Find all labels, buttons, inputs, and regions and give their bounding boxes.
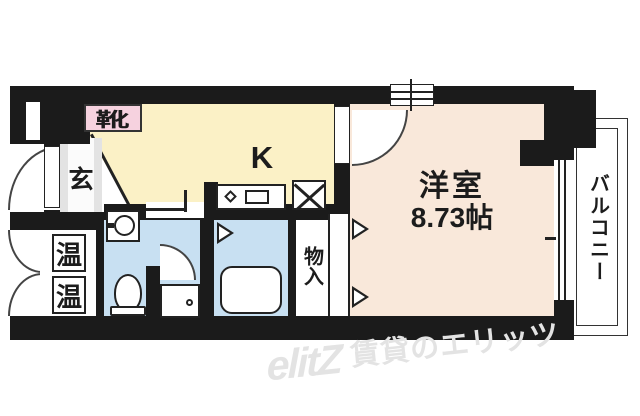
westernroom-door-leaf — [334, 106, 350, 164]
sliding-window-tick — [545, 237, 556, 240]
wall-bath-washroom — [200, 212, 214, 316]
wall-closet-right — [96, 218, 104, 318]
wall-top — [88, 86, 560, 104]
water-heater-top-label: 温 — [56, 235, 82, 272]
floorplan-canvas: 温 温 靴 玄 K 洋室 8.73帖 物入 バルコニー elitZ賃貸のエリッツ — [0, 0, 640, 416]
western-room-size: 8.73帖 — [356, 203, 548, 234]
storage-label: 物入 — [296, 224, 328, 308]
wall-notch-window — [26, 102, 40, 140]
water-heater-bottom: 温 — [52, 276, 86, 314]
wall-bath-storage — [288, 212, 296, 316]
wall-below-entrance — [10, 212, 104, 230]
western-room-name: 洋室 — [356, 170, 548, 203]
shoe-cabinet-badge: 靴 — [84, 104, 142, 132]
window-top-line2 — [390, 98, 434, 100]
washroom-sliding-door-line — [146, 208, 186, 211]
toilet-base-icon — [110, 306, 146, 316]
kitchen-sink-icon — [245, 190, 269, 204]
water-heater-bottom-label: 温 — [56, 277, 82, 314]
entrance-label: 玄 — [62, 160, 100, 196]
washer-pan-icon — [160, 284, 200, 318]
balcony-label: バルコニー — [580, 138, 616, 318]
wall-washroom-stub — [146, 266, 160, 316]
kitchen-label: K — [238, 140, 286, 176]
washbasin-icon — [106, 210, 140, 242]
wall-topright-step — [520, 140, 546, 166]
closet-door-top-arc-icon — [8, 230, 42, 273]
sliding-window-line1 — [558, 160, 560, 300]
wall-topleft-block — [10, 86, 90, 144]
window-top-icon — [390, 84, 434, 106]
window-top-line1 — [390, 91, 434, 93]
wall-topright-corner — [544, 86, 574, 166]
entrance-door-leaf — [44, 146, 60, 208]
water-heater-top: 温 — [52, 234, 86, 272]
washroom-sliding-door-tick — [184, 190, 187, 212]
bathtub-icon — [220, 266, 282, 314]
sliding-window-line2 — [564, 160, 566, 300]
window-top-tick — [410, 79, 412, 111]
watermark-logo: elitZ — [267, 335, 341, 390]
closet-door-bottom-arc-icon — [8, 273, 42, 316]
shoe-cabinet-label: 靴 — [96, 105, 130, 132]
storage-door-strip — [328, 214, 350, 316]
gas-stove-icon — [292, 180, 326, 210]
western-room-label-group: 洋室 8.73帖 — [356, 170, 548, 234]
